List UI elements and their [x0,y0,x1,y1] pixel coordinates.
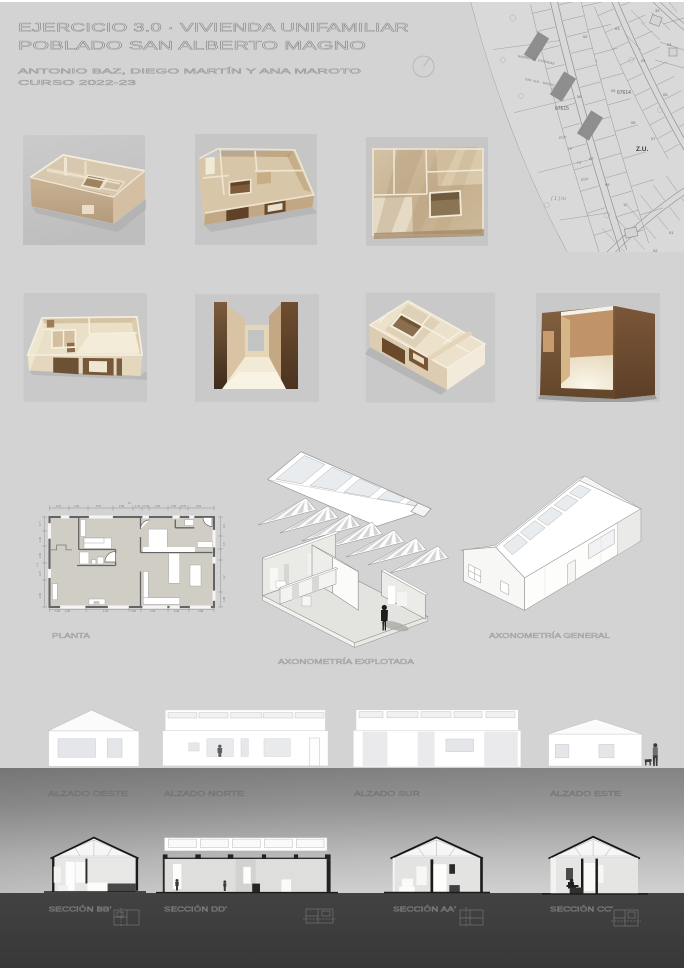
svg-text:2.30: 2.30 [38,592,42,598]
svg-text:5.47: 5.47 [96,504,102,508]
svg-text:3.2: 3.2 [222,575,226,579]
svg-text:1.5: 1.5 [222,542,226,546]
svg-text:E/P: E/P [581,177,588,182]
svg-text:ALZADO SUR: ALZADO SUR [354,791,420,798]
svg-text:4.40: 4.40 [74,504,80,508]
svg-text:1.48: 1.48 [222,596,226,602]
svg-text:PLANTA: PLANTA [52,633,90,640]
svg-text:05: 05 [611,88,616,93]
svg-text:67615: 67615 [555,106,569,112]
svg-text:0.77: 0.77 [38,520,42,526]
svg-text:1.6: 1.6 [222,524,226,528]
svg-text:0.40: 0.40 [174,609,180,613]
svg-text:POBLADO SAN ALBERTO MAGNO: POBLADO SAN ALBERTO MAGNO [18,39,366,53]
svg-text:1.70: 1.70 [135,504,141,508]
svg-text:07: 07 [651,136,656,141]
svg-text:0.40: 0.40 [155,504,161,508]
svg-text:ALZADO OESTE: ALZADO OESTE [48,791,128,798]
svg-text:0.40: 0.40 [55,609,61,613]
svg-text:SECCIÓN BB': SECCIÓN BB' [49,905,112,914]
svg-text:0.60: 0.60 [131,609,137,613]
svg-text:AXONOMETRÍA GENERAL: AXONOMETRÍA GENERAL [489,631,610,640]
svg-text:ALZADO ESTE: ALZADO ESTE [550,791,621,798]
svg-text:0.47: 0.47 [56,504,62,508]
svg-text:01: 01 [669,230,674,235]
svg-text:1.07: 1.07 [38,570,42,576]
svg-text:05: 05 [663,92,668,97]
svg-text:04: 04 [667,42,672,47]
svg-text:2.35: 2.35 [65,609,71,613]
svg-text:1.94: 1.94 [103,609,109,613]
svg-text:02: 02 [583,34,588,39]
svg-text:09: 09 [605,182,610,187]
svg-text:E/P: E/P [559,135,566,140]
svg-text:AXONOMETRÍA EXPLOTADA: AXONOMETRÍA EXPLOTADA [278,657,414,666]
svg-text:2.98: 2.98 [198,609,204,613]
svg-text:2.35: 2.35 [150,609,156,613]
svg-text:1.40: 1.40 [38,536,42,542]
svg-text:12: 12 [623,202,628,207]
svg-text:CURSO 2022-23: CURSO 2022-23 [18,78,136,87]
svg-text:2.04: 2.04 [171,504,177,508]
svg-text:2.36: 2.36 [119,504,125,508]
svg-text:14: 14 [128,501,131,505]
svg-text:33: 33 [655,8,660,13]
svg-text:0.75: 0.75 [144,504,150,508]
svg-text:ALZADO NORTE: ALZADO NORTE [164,791,244,798]
svg-text:0.76: 0.76 [181,504,187,508]
svg-text:06: 06 [577,94,582,99]
svg-text:Hr: Hr [568,146,573,151]
svg-text:7.4: 7.4 [36,563,40,567]
svg-text:l: l [596,58,597,63]
svg-text:02: 02 [653,248,658,252]
svg-text:04: 04 [641,58,646,63]
svg-text:SECCIÓN AA': SECCIÓN AA' [393,905,456,914]
svg-text:SECCIÓN DD': SECCIÓN DD' [164,905,227,914]
svg-text:Hr: Hr [577,160,582,165]
svg-text:Z.U.: Z.U. [636,146,648,153]
svg-text:SECCIÓN CC': SECCIÓN CC' [550,905,613,914]
svg-text:EJERCICIO 3.0 · VIVIENDA UNIFA: EJERCICIO 3.0 · VIVIENDA UNIFAMILIAR [18,21,410,35]
svg-text:1.50: 1.50 [38,552,42,558]
svg-text:03: 03 [615,26,620,31]
svg-text:( 1 ) ru: ( 1 ) ru [551,196,566,202]
svg-text:3.94: 3.94 [196,504,202,508]
svg-text:ANTONIO BAZ, DIEGO MARTÍN Y AN: ANTONIO BAZ, DIEGO MARTÍN Y ANA MAROTO [18,67,361,76]
svg-text:67614: 67614 [617,90,631,96]
svg-text:06: 06 [631,120,636,125]
svg-text:07: 07 [589,156,594,161]
